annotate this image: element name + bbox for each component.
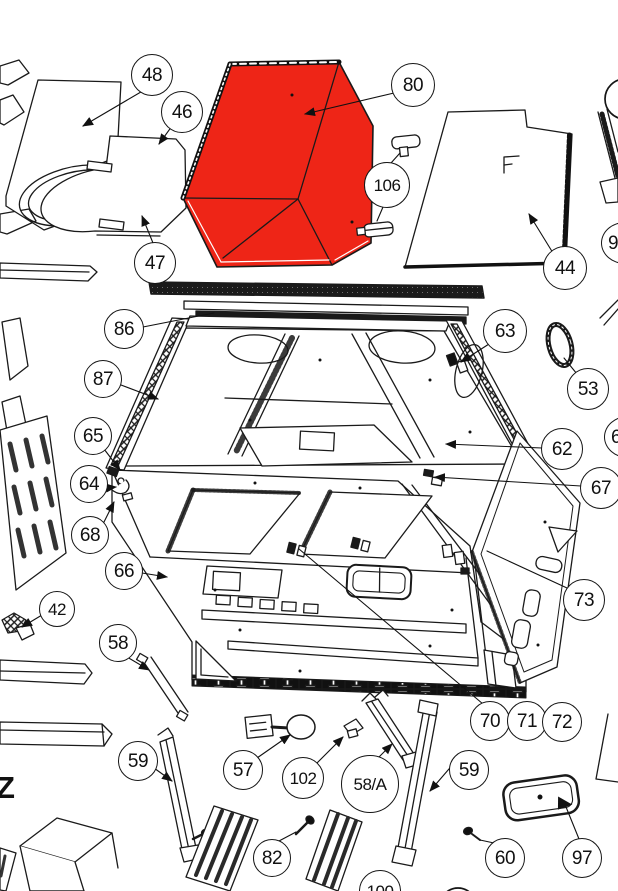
balloon-64: 64 bbox=[70, 465, 108, 503]
part-102-clip bbox=[344, 719, 363, 738]
part-lower-chassis bbox=[112, 470, 534, 698]
balloon-68: 68 bbox=[71, 516, 109, 554]
part-upper-frame bbox=[106, 316, 540, 470]
balloon-87: 87 bbox=[84, 360, 122, 398]
leader-102 bbox=[316, 737, 343, 764]
leader-57 bbox=[257, 735, 290, 758]
balloon-42: 42 bbox=[39, 591, 75, 627]
cut-panel-corner-right bbox=[596, 714, 618, 782]
balloon-44: 44 bbox=[543, 246, 587, 290]
balloon-71: 71 bbox=[507, 701, 547, 741]
part-80-highlighted-box bbox=[183, 62, 373, 267]
part-53-collar bbox=[544, 322, 576, 368]
leader-82 bbox=[279, 832, 296, 841]
part-60-rivet bbox=[463, 826, 480, 840]
part-louver-panel-a bbox=[186, 806, 258, 891]
balloon-97: 97 bbox=[562, 838, 602, 878]
balloon-60: 60 bbox=[485, 838, 525, 878]
balloon-73: 73 bbox=[563, 579, 605, 621]
balloon-59-left: 59 bbox=[118, 741, 158, 781]
balloon-58: 58 bbox=[99, 624, 137, 662]
cut-part-right-edge-rail bbox=[598, 109, 618, 325]
balloon-80: 80 bbox=[391, 63, 435, 107]
balloon-partial-top-right bbox=[605, 79, 618, 119]
part-left-louver-panel bbox=[0, 416, 66, 590]
part-57-damper-rod bbox=[245, 715, 315, 739]
balloon-48: 48 bbox=[131, 54, 173, 96]
balloon-58A: 58/A bbox=[341, 755, 399, 813]
part-left-small-plate-1 bbox=[2, 318, 28, 380]
left-column-parts bbox=[0, 263, 118, 891]
balloon-62: 62 bbox=[541, 428, 583, 470]
balloon-46: 46 bbox=[161, 91, 203, 133]
balloon-65: 65 bbox=[74, 417, 112, 455]
balloon-57: 57 bbox=[223, 750, 263, 790]
part-open-box-tray bbox=[20, 818, 118, 891]
part-58-rail-target bbox=[137, 653, 188, 721]
leader-58A bbox=[379, 744, 392, 757]
balloon-86: 86 bbox=[104, 309, 144, 349]
part-59-rail-left bbox=[158, 728, 202, 862]
part-42-bracket bbox=[2, 613, 34, 640]
balloon-66: 66 bbox=[105, 552, 143, 590]
leader-106b bbox=[377, 207, 383, 221]
balloon-82: 82 bbox=[253, 839, 291, 877]
cut-louver-corner bbox=[0, 848, 16, 891]
part-left-square-tube bbox=[0, 722, 112, 746]
balloon-53: 53 bbox=[567, 368, 609, 410]
balloon-63: 63 bbox=[483, 309, 527, 353]
balloon-67: 67 bbox=[580, 467, 618, 509]
balloon-70: 70 bbox=[470, 701, 510, 741]
exploded-parts-diagram: 48 46 80 47 106 44 86 87 63 53 62 67 65 … bbox=[0, 0, 618, 891]
balloon-102: 102 bbox=[282, 757, 324, 799]
balloon-72: 72 bbox=[542, 702, 582, 742]
cutoff-z-label: Z bbox=[0, 770, 15, 806]
leader-106a bbox=[391, 153, 400, 163]
balloon-106: 106 bbox=[364, 162, 410, 208]
balloon-59-right: 59 bbox=[449, 750, 489, 790]
balloon-47: 47 bbox=[134, 242, 176, 284]
part-82-screw bbox=[296, 814, 316, 834]
